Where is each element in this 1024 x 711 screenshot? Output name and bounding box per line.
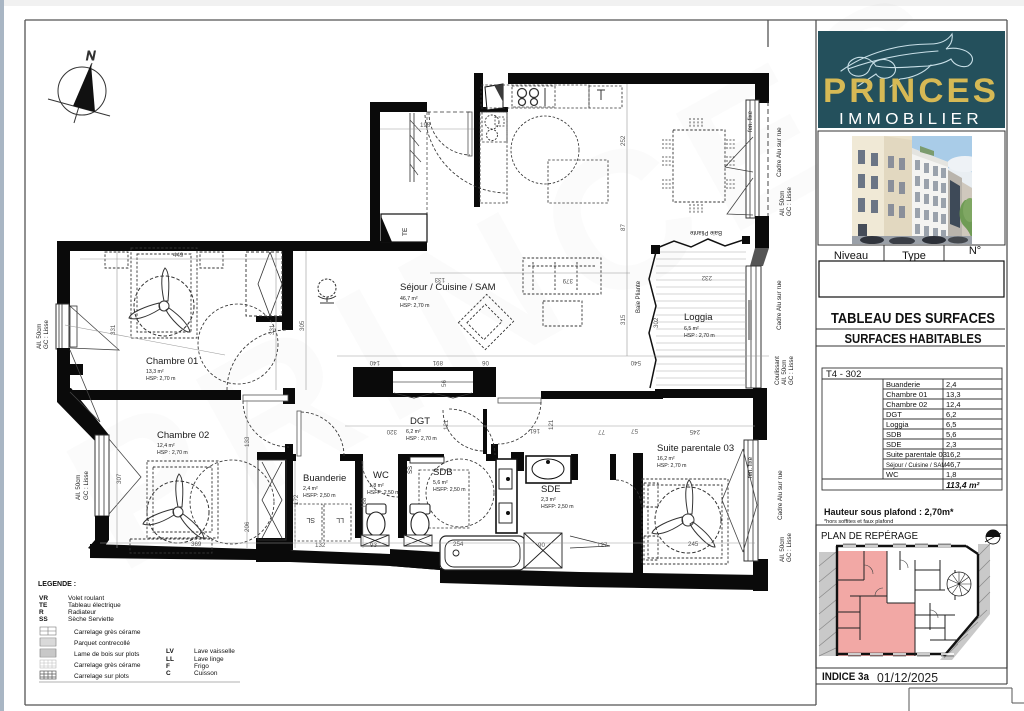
svg-text:113,4 m²: 113,4 m²: [946, 480, 981, 490]
svg-text:87: 87: [620, 224, 627, 231]
svg-text:Cadre Alu sur rue: Cadre Alu sur rue: [777, 470, 784, 520]
svg-text:140: 140: [369, 359, 380, 366]
svg-text:93: 93: [370, 542, 377, 549]
svg-text:HSFP: 2,50 m: HSFP: 2,50 m: [303, 493, 336, 499]
svg-text:13,3: 13,3: [946, 390, 961, 399]
svg-text:1,8: 1,8: [946, 470, 956, 479]
svg-text:All. 50cm: All. 50cm: [75, 475, 82, 500]
svg-text:Tableau électrique: Tableau électrique: [68, 602, 121, 609]
svg-text:307: 307: [116, 473, 123, 484]
svg-text:Carrelage grès cérame: Carrelage grès cérame: [74, 662, 141, 669]
svg-text:Frigo: Frigo: [194, 663, 209, 670]
svg-text:Carrelage grès cérame: Carrelage grès cérame: [74, 629, 141, 636]
svg-text:56: 56: [441, 380, 448, 387]
svg-text:HSFP: 2,50 m: HSFP: 2,50 m: [541, 504, 574, 510]
svg-text:245: 245: [689, 428, 700, 435]
svg-text:320: 320: [386, 428, 397, 435]
svg-text:302: 302: [653, 317, 660, 328]
svg-text:fen. fixe: fen. fixe: [748, 456, 754, 478]
svg-text:WC: WC: [886, 470, 899, 479]
svg-text:254: 254: [453, 541, 464, 548]
svg-text:891: 891: [432, 359, 443, 366]
svg-text:GC : Lisse: GC : Lisse: [786, 187, 793, 216]
svg-text:Lave vaisselle: Lave vaisselle: [194, 648, 235, 655]
svg-text:12,4 m²: 12,4 m²: [157, 443, 175, 449]
svg-text:305: 305: [299, 320, 306, 331]
svg-text:132: 132: [315, 542, 326, 549]
svg-text:331: 331: [110, 324, 117, 335]
svg-text:46,7 m²: 46,7 m²: [400, 296, 418, 302]
svg-text:Cadre Alu sur rue: Cadre Alu sur rue: [776, 127, 783, 177]
svg-text:*hors soffites et faux plafond: *hors soffites et faux plafond: [824, 519, 893, 525]
svg-text:C: C: [166, 670, 171, 677]
svg-text:198: 198: [420, 122, 431, 129]
svg-text:1,8 m²: 1,8 m²: [369, 483, 384, 489]
svg-text:SDE: SDE: [886, 440, 901, 449]
svg-text:IMMOBILIER: IMMOBILIER: [839, 111, 983, 128]
svg-text:188: 188: [361, 497, 368, 508]
svg-text:2,4: 2,4: [946, 380, 956, 389]
svg-text:6,2: 6,2: [946, 410, 956, 419]
svg-text:16,2 m²: 16,2 m²: [657, 456, 675, 462]
svg-text:133: 133: [244, 436, 251, 447]
svg-text:379: 379: [562, 277, 573, 284]
svg-text:06: 06: [482, 359, 489, 366]
svg-text:Cuisson: Cuisson: [194, 670, 218, 677]
svg-text:6,5: 6,5: [946, 420, 956, 429]
svg-text:5,6: 5,6: [946, 430, 956, 439]
svg-text:Sèche Serviette: Sèche Serviette: [68, 616, 114, 623]
svg-text:121: 121: [548, 419, 555, 430]
svg-text:INDICE 3a: INDICE 3a: [822, 671, 870, 683]
svg-text:HSFP: 2,50 m: HSFP: 2,50 m: [433, 487, 466, 493]
svg-text:12,4: 12,4: [946, 400, 961, 409]
svg-text:LV: LV: [166, 648, 174, 655]
svg-text:Suite parentale 03: Suite parentale 03: [886, 450, 947, 459]
svg-text:121: 121: [443, 419, 450, 430]
svg-text:Hauteur sous plafond : 2,70m*: Hauteur sous plafond : 2,70m*: [824, 507, 954, 517]
svg-text:Séjour / Cuisine / SAM: Séjour / Cuisine / SAM: [886, 463, 946, 469]
svg-text:5,6 m²: 5,6 m²: [433, 480, 448, 486]
svg-text:232: 232: [701, 274, 712, 281]
svg-text:PLAN DE REPÉRAGE: PLAN DE REPÉRAGE: [821, 529, 918, 542]
svg-text:All. 50cm: All. 50cm: [781, 360, 788, 385]
svg-text:46,7: 46,7: [946, 460, 961, 469]
svg-text:77: 77: [598, 428, 605, 435]
svg-text:HSP: 2,70 m: HSP: 2,70 m: [146, 376, 175, 382]
svg-text:N°: N°: [969, 245, 981, 257]
svg-text:161: 161: [529, 427, 540, 434]
svg-text:R: R: [39, 609, 44, 616]
svg-text:Chambre 02: Chambre 02: [157, 430, 209, 441]
svg-text:All. 50cm: All. 50cm: [779, 537, 786, 562]
svg-text:TE: TE: [402, 227, 409, 236]
svg-text:2,3: 2,3: [946, 440, 956, 449]
svg-text:127: 127: [597, 542, 608, 549]
svg-text:N: N: [86, 48, 96, 63]
svg-text:GC : Lisse: GC : Lisse: [788, 356, 795, 385]
svg-text:Volet roulant: Volet roulant: [68, 595, 104, 602]
svg-text:Buanderie: Buanderie: [303, 473, 346, 484]
svg-text:2,3 m²: 2,3 m²: [541, 497, 556, 503]
svg-text:DGT: DGT: [886, 410, 902, 419]
svg-text:HSP : 2,70 m: HSP : 2,70 m: [157, 450, 188, 456]
svg-text:Lame de bois sur plots: Lame de bois sur plots: [74, 651, 140, 658]
svg-text:F: F: [166, 663, 170, 670]
svg-text:Loggia: Loggia: [886, 420, 909, 429]
svg-text:Séjour / Cuisine / SAM: Séjour / Cuisine / SAM: [400, 282, 496, 293]
svg-text:2,4 m²: 2,4 m²: [303, 486, 318, 492]
svg-text:SDB: SDB: [886, 430, 901, 439]
svg-text:TE: TE: [39, 602, 48, 609]
svg-text:DGT: DGT: [410, 416, 430, 427]
svg-text:57: 57: [631, 427, 638, 434]
svg-text:172: 172: [293, 494, 300, 505]
svg-text:SDB: SDB: [433, 467, 453, 478]
svg-text:Cadre Alu sur rue: Cadre Alu sur rue: [776, 280, 783, 330]
svg-text:GC : Lisse: GC : Lisse: [786, 533, 793, 562]
svg-text:90: 90: [538, 542, 545, 549]
svg-text:SDE: SDE: [541, 484, 561, 495]
svg-text:133: 133: [434, 276, 445, 283]
svg-text:HSP : 2,70 m: HSP : 2,70 m: [406, 436, 437, 442]
svg-text:LL: LL: [166, 656, 174, 663]
svg-text:All. 50cm: All. 50cm: [36, 324, 43, 349]
svg-text:Chambre 01: Chambre 01: [146, 356, 198, 367]
svg-text:VR: VR: [39, 595, 48, 602]
svg-text:01/12/2025: 01/12/2025: [877, 670, 938, 685]
svg-text:LEGENDE :: LEGENDE :: [38, 581, 76, 588]
svg-text:TABLEAU DES SURFACES: TABLEAU DES SURFACES: [831, 310, 995, 327]
svg-text:HSP : 2,70 m: HSP : 2,70 m: [684, 333, 715, 339]
svg-text:245: 245: [688, 541, 699, 548]
svg-text:GC : Lisse: GC : Lisse: [43, 320, 50, 349]
svg-text:Niveau: Niveau: [834, 250, 868, 262]
svg-text:HSP: 2,70 m: HSP: 2,70 m: [657, 463, 686, 469]
svg-text:449: 449: [173, 252, 184, 259]
svg-text:6,2 m²: 6,2 m²: [406, 429, 421, 435]
svg-text:Parquet contrecollé: Parquet contrecollé: [74, 640, 130, 647]
svg-text:540: 540: [630, 359, 641, 366]
svg-text:Type: Type: [902, 250, 926, 262]
svg-text:Chambre 01: Chambre 01: [886, 390, 927, 399]
svg-text:SS: SS: [408, 466, 414, 474]
svg-text:GC : Lisse: GC : Lisse: [83, 471, 90, 500]
svg-text:Loggia: Loggia: [684, 312, 713, 323]
svg-text:SURFACES HABITABLES: SURFACES HABITABLES: [845, 332, 982, 346]
svg-text:Coulissant: Coulissant: [774, 356, 781, 385]
svg-text:LL: LL: [336, 516, 344, 523]
svg-text:SL: SL: [306, 516, 315, 523]
svg-text:Baie Pliante: Baie Pliante: [689, 229, 722, 235]
svg-text:Lave linge: Lave linge: [194, 656, 224, 663]
svg-text:PRINCES: PRINCES: [823, 72, 999, 110]
svg-text:Buanderie: Buanderie: [886, 380, 920, 389]
svg-text:Chambre 02: Chambre 02: [886, 400, 927, 409]
svg-text:252: 252: [620, 135, 627, 146]
svg-text:All. 50cm: All. 50cm: [779, 191, 786, 216]
svg-text:HSP: 2,70 m: HSP: 2,70 m: [400, 303, 429, 309]
svg-text:13,3 m²: 13,3 m²: [146, 369, 164, 375]
svg-text:206: 206: [244, 521, 251, 532]
svg-text:HSFP: 2,50 m: HSFP: 2,50 m: [367, 490, 400, 496]
svg-text:WC: WC: [373, 470, 389, 481]
svg-text:369: 369: [191, 541, 202, 548]
svg-text:Carrelage sur plots: Carrelage sur plots: [74, 673, 130, 680]
svg-text:Radiateur: Radiateur: [68, 609, 97, 616]
svg-text:Baie Pliante: Baie Pliante: [636, 280, 642, 313]
svg-text:Suite parentale 03: Suite parentale 03: [657, 443, 734, 454]
svg-text:331: 331: [269, 324, 276, 335]
svg-text:6,5 m²: 6,5 m²: [684, 326, 699, 332]
svg-text:315: 315: [620, 314, 627, 325]
svg-text:fen. fixe: fen. fixe: [748, 110, 754, 132]
svg-text:16,2: 16,2: [946, 450, 961, 459]
svg-text:SS: SS: [39, 616, 48, 623]
svg-text:T4 - 302: T4 - 302: [826, 369, 861, 380]
